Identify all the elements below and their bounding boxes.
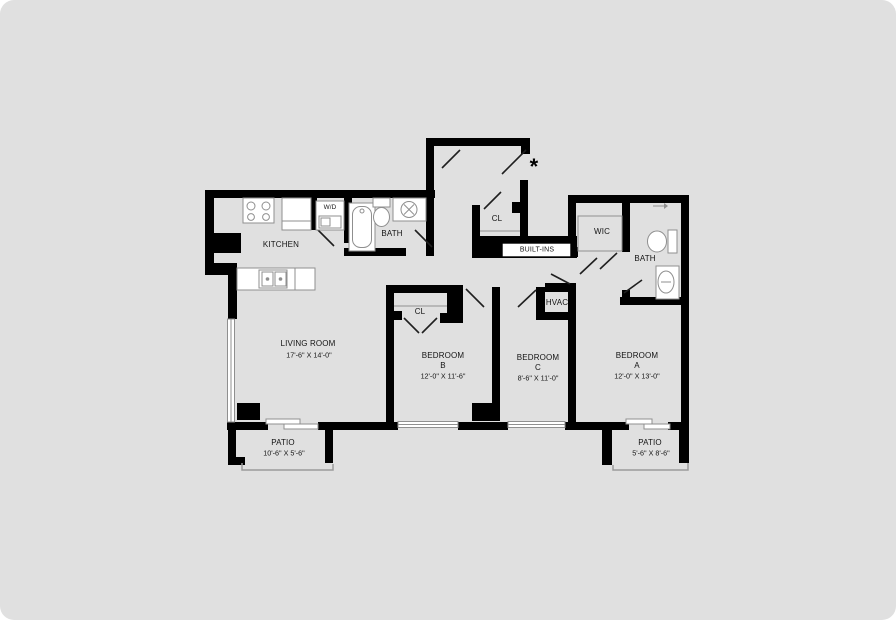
- room-letter-bedroom-b: B: [440, 362, 446, 370]
- room-label-patio-right: PATIO: [638, 439, 662, 447]
- living-room-sliding-door: [266, 419, 318, 429]
- room-dims-patio-right: 5'-6" X 8'-6": [632, 449, 669, 456]
- kitchen-door-swing: [316, 228, 334, 246]
- hvac-door-swing: [551, 274, 570, 284]
- room-label-bedroom-a: BEDROOM: [616, 352, 658, 360]
- room-label-wic: WIC: [594, 228, 610, 236]
- patio-left-railing: [242, 463, 333, 470]
- room-letter-bedroom-a: A: [634, 362, 640, 370]
- wic-door-swing: [600, 253, 617, 269]
- room-dims-bedroom-c: 8'-6" X 11'-0": [518, 374, 559, 381]
- room-label-bedroom-c: BEDROOM: [517, 354, 559, 362]
- room-dims-bedroom-a: 12'-0" X 13'-0": [614, 372, 659, 379]
- closet-b-door-swing-left: [404, 318, 419, 333]
- stove-icon: [243, 198, 274, 223]
- room-letter-bedroom-c: C: [535, 364, 541, 372]
- bathtub-icon: [349, 203, 375, 251]
- patio-right-railing: [613, 463, 688, 470]
- sink-right-icon: [656, 266, 679, 299]
- bedroom-a-door-swing: [580, 258, 597, 274]
- entry-asterisk-marker: *: [530, 156, 539, 178]
- fridge-icon: [282, 198, 311, 230]
- bath-right-door-swing: [624, 280, 642, 293]
- room-dims-patio-left: 10'-6" X 5'-6": [263, 449, 304, 456]
- screenshot: * KITCHEN W/D BATH CL BUILT-INS WIC BATH…: [0, 0, 896, 620]
- toilet-right-icon: [648, 230, 678, 253]
- closet-b-door-swing-right: [422, 318, 437, 333]
- room-label-bath-right: BATH: [634, 255, 655, 263]
- room-label-hvac: HVAC: [546, 299, 568, 307]
- room-label-bath-left: BATH: [381, 230, 402, 238]
- entry-closet-door-swing: [484, 192, 501, 209]
- walls: [205, 138, 689, 465]
- room-label-built-ins: BUILT-INS: [520, 247, 554, 254]
- room-label-bedroom-b: BEDROOM: [422, 352, 464, 360]
- entry-door-swing: [502, 150, 526, 174]
- room-label-closet-entry: CL: [492, 215, 503, 223]
- towel-bar-icon: [653, 203, 668, 209]
- room-label-living-room: LIVING ROOM: [281, 340, 336, 348]
- bedroom-c-door-swing: [518, 290, 536, 307]
- room-label-closet-bedroom-b: CL: [415, 308, 426, 316]
- room-dims-living-room: 17'-6" X 14'-0": [286, 351, 331, 358]
- bedroom-b-door-swing: [466, 289, 484, 307]
- room-label-kitchen: KITCHEN: [263, 241, 299, 249]
- sink-left-icon: [393, 198, 426, 221]
- corridor-door-swing: [442, 150, 460, 168]
- kitchen-counter-sink-icon: [237, 268, 315, 290]
- bedroom-a-sliding-door: [626, 419, 670, 429]
- room-label-patio-left: PATIO: [271, 439, 295, 447]
- floorplan-drawing: [0, 0, 896, 620]
- room-label-laundry: W/D: [324, 205, 337, 211]
- toilet-left-icon: [373, 198, 390, 227]
- room-dims-bedroom-b: 12'-0" X 11'-6": [421, 372, 466, 379]
